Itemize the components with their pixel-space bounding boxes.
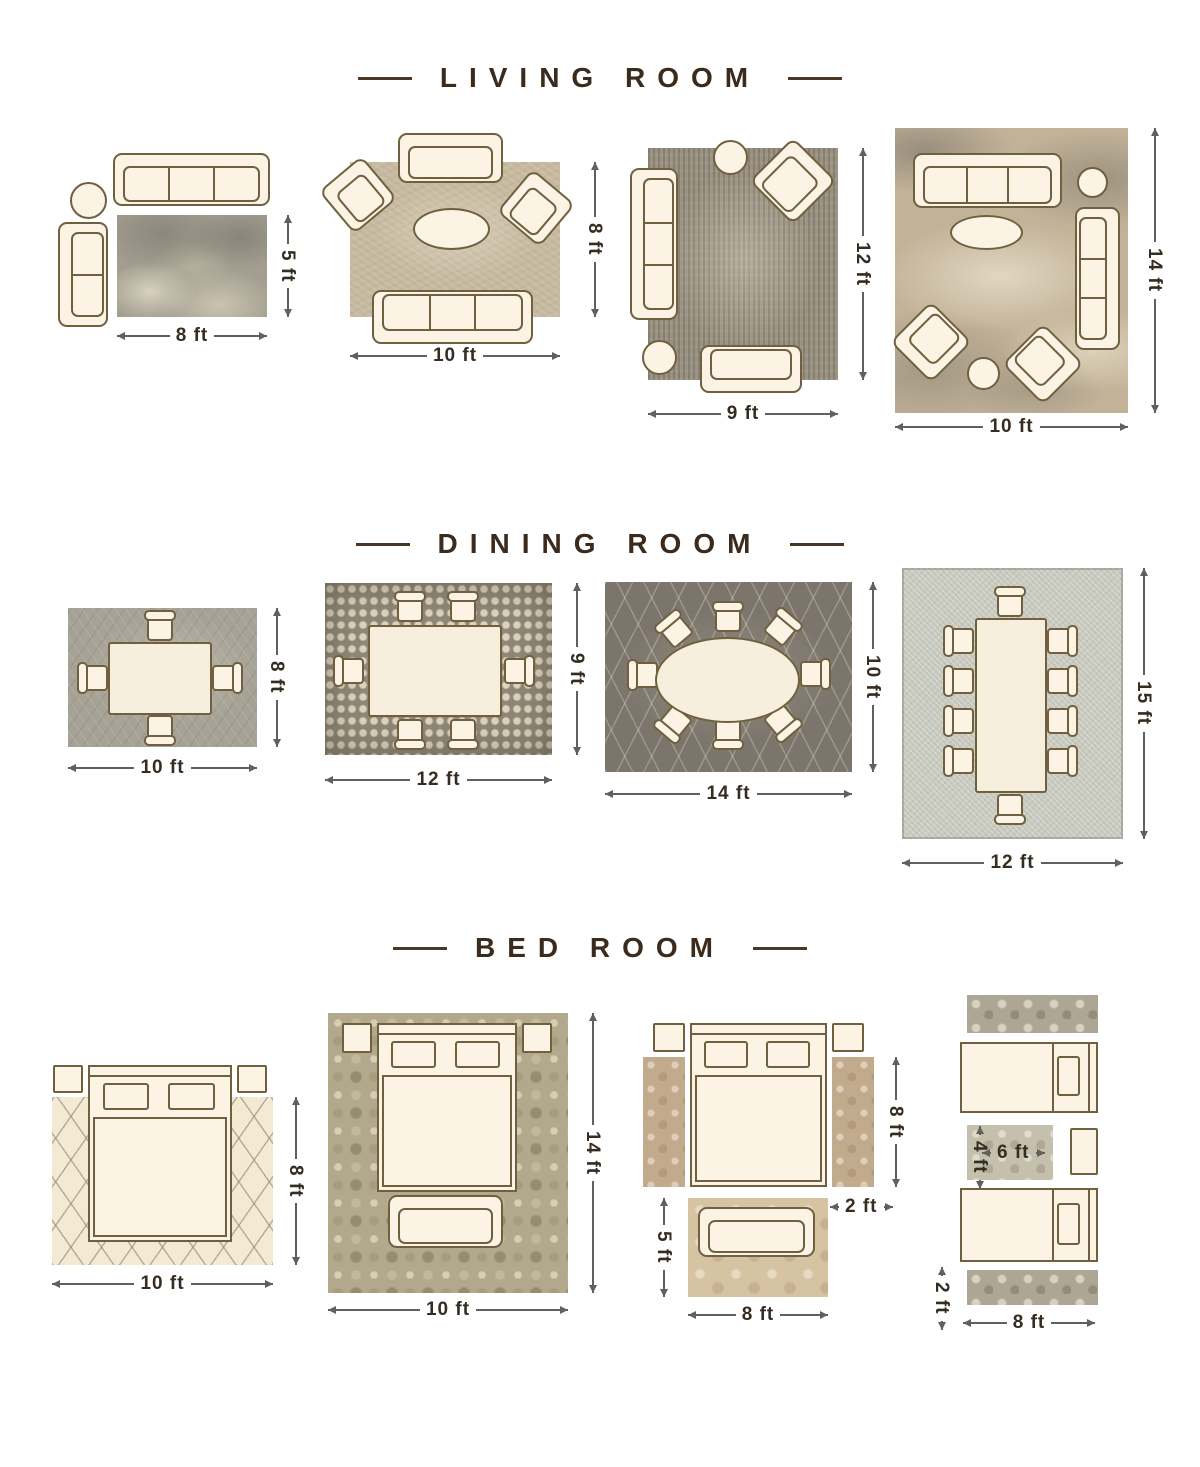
dining-chair (1047, 628, 1073, 654)
dining-chair (147, 615, 173, 641)
pillow (168, 1083, 214, 1110)
dining-chair (997, 794, 1023, 820)
dim-line (476, 1309, 568, 1311)
bedroom-layout-10x8: 8 ft 10 ft (42, 1060, 337, 1305)
dim-line (895, 1144, 897, 1187)
dim-label: 10 ft (863, 649, 882, 705)
twin-bed (960, 1188, 1098, 1262)
loveseat (698, 1207, 815, 1257)
round-side-table (70, 182, 107, 219)
sofa-three-seat (372, 290, 533, 344)
dim-line (576, 583, 578, 647)
loveseat (398, 133, 503, 183)
dim-label: 8 ft (170, 326, 215, 345)
dim-line (780, 1314, 828, 1316)
nightstand (53, 1065, 83, 1093)
dim-line (872, 705, 874, 772)
headboard (377, 1023, 517, 1035)
dimension-height: 8 ft (286, 1097, 305, 1265)
runner-rug-bottom (967, 1270, 1098, 1305)
dining-chair (800, 661, 826, 687)
dimension-width: 8 ft (963, 1313, 1095, 1332)
dimension-width: 8 ft (117, 326, 267, 345)
dim-line (350, 355, 427, 357)
dim-line (276, 700, 278, 747)
dim-line (688, 1314, 736, 1316)
dim-label: 8 ft (267, 655, 286, 700)
dining-chair (1047, 748, 1073, 774)
dining-chair (450, 719, 476, 745)
bed (377, 1023, 517, 1192)
dim-line (68, 767, 134, 769)
dim-line (287, 215, 289, 244)
dim-line (1154, 128, 1156, 242)
dim-line (979, 1126, 981, 1135)
dimension-height: 8 ft (585, 162, 604, 317)
pillow (766, 1041, 810, 1068)
rug-size-guide: LIVING ROOM 5 ft 8 ft 8 ft 10 ft 12 ft 9… (0, 0, 1200, 1467)
headboard (690, 1023, 827, 1035)
dining-layout-10x8: 8 ft 10 ft (62, 600, 352, 790)
bed-room-title: BED ROOM (475, 932, 725, 964)
dim-line (576, 691, 578, 755)
dim-label: 12 ft (984, 853, 1040, 872)
bedroom-layout-twin-runners: 4 ft 6 ft 2 ft 8 ft (930, 990, 1200, 1340)
dining-chair (450, 596, 476, 622)
nightstand (237, 1065, 267, 1093)
dim-label: 12 ft (410, 770, 466, 789)
dining-chair (212, 665, 238, 691)
dimension-width: 10 ft (328, 1300, 568, 1319)
dining-chair (948, 668, 974, 694)
dimension-width: 9 ft (648, 404, 838, 423)
dim-line (1143, 732, 1145, 839)
dim-line (941, 1321, 943, 1330)
dim-line (594, 262, 596, 317)
round-side-table (713, 140, 748, 175)
dim-label: 8 ft (736, 1305, 781, 1324)
title-dash-left (393, 947, 447, 950)
dim-line (276, 608, 278, 655)
oval-coffee-table (950, 215, 1023, 250)
living-layout-10x8: 8 ft 10 ft (330, 128, 625, 378)
dimension-height: 5 ft (278, 215, 297, 317)
dim-line (483, 355, 560, 357)
pillow (391, 1041, 436, 1068)
seat-cushions (643, 178, 674, 310)
round-ottoman (642, 340, 677, 375)
dimension-width: 14 ft (605, 784, 852, 803)
dining-chair (948, 708, 974, 734)
dim-line (214, 335, 267, 337)
dimension-width: 8 ft (688, 1305, 828, 1324)
dim-line (605, 793, 700, 795)
seat-cushions (123, 166, 260, 202)
dim-line (982, 1152, 991, 1154)
oval-coffee-table (413, 208, 490, 250)
twin-bed (960, 1042, 1098, 1113)
dim-label: 8 ft (886, 1100, 905, 1145)
nightstand (832, 1023, 864, 1052)
dining-layout-12x9: 9 ft 12 ft (322, 580, 617, 805)
dim-label: 10 ft (427, 346, 483, 365)
dim-label: 14 ft (700, 784, 756, 803)
dim-line (467, 779, 552, 781)
bed-seam (1052, 1188, 1054, 1262)
dimension-height: 8 ft (267, 608, 286, 747)
dining-chair (632, 662, 658, 688)
dim-line (902, 862, 984, 864)
dim-line (1041, 862, 1123, 864)
section-title-dining-room: DINING ROOM (0, 528, 1200, 560)
dim-line (191, 1283, 273, 1285)
dim-line (592, 1013, 594, 1125)
dim-line (1036, 1152, 1045, 1154)
dimension-width: 10 ft (895, 417, 1128, 436)
dining-layout-12x15: 15 ft 12 ft (898, 565, 1183, 875)
dim-line (663, 1198, 665, 1225)
seat-cushions (710, 349, 792, 380)
dim-line (765, 413, 838, 415)
dim-line (963, 1322, 1007, 1324)
dimension-height: 15 ft (1134, 568, 1153, 839)
dining-chair (397, 596, 423, 622)
dimension-height: 5 ft (654, 1198, 673, 1297)
headboard (88, 1065, 232, 1077)
dim-label: 10 ft (134, 1274, 190, 1293)
loveseat (700, 345, 802, 393)
title-dash-left (358, 77, 412, 80)
dim-label: 10 ft (134, 758, 190, 777)
runner-rug-top (967, 995, 1098, 1033)
sofa-three-seat (1075, 207, 1120, 350)
dim-label: 6 ft (991, 1143, 1036, 1162)
living-layout-9x12: 12 ft 9 ft (628, 138, 918, 433)
dim-line (1143, 568, 1145, 675)
dim-label: 15 ft (1134, 675, 1153, 731)
title-dash-right (788, 77, 842, 80)
living-rug-8x5 (117, 215, 267, 317)
dimension-runner-width: 2 ft (830, 1197, 910, 1216)
nightstand (342, 1023, 372, 1053)
dim-line (862, 148, 864, 236)
dim-line (979, 1180, 981, 1189)
dining-chair (948, 748, 974, 774)
nightstand (522, 1023, 552, 1053)
section-title-bed-room: BED ROOM (0, 932, 1200, 964)
dining-chair (715, 606, 741, 632)
dim-line (872, 582, 874, 649)
seat-cushions (398, 1208, 493, 1244)
dimension-runner-height: 8 ft (886, 1057, 905, 1187)
dim-label: 9 ft (721, 404, 766, 423)
dining-chair (147, 715, 173, 741)
dining-table (368, 625, 502, 717)
bedspread (695, 1075, 822, 1182)
dimension-width: 10 ft (68, 758, 257, 777)
headboard (1088, 1188, 1098, 1262)
dim-line (594, 162, 596, 217)
dim-label: 5 ft (278, 244, 297, 289)
dining-chair (397, 719, 423, 745)
dim-label: 8 ft (585, 217, 604, 262)
dim-line (663, 1270, 665, 1297)
dim-label: 2 ft (839, 1197, 884, 1216)
dim-line (328, 1309, 420, 1311)
bed (88, 1065, 232, 1242)
pillow (1057, 1056, 1080, 1096)
nightstand (653, 1023, 685, 1052)
dim-line (325, 779, 410, 781)
dim-line (1051, 1322, 1095, 1324)
dim-label: 12 ft (853, 236, 872, 292)
dim-label: 14 ft (583, 1125, 602, 1181)
dim-line (862, 292, 864, 380)
dim-line (895, 426, 983, 428)
bedspread (382, 1075, 512, 1187)
dim-label: 10 ft (983, 417, 1039, 436)
round-side-table (1077, 167, 1108, 198)
dining-chair (1047, 668, 1073, 694)
title-dash-left (356, 543, 410, 546)
seat-cushions (923, 166, 1052, 204)
dimension-runner-width: 2 ft (932, 1267, 951, 1308)
round-ottoman (967, 357, 1000, 390)
sofa-three-seat (630, 168, 678, 320)
dim-label: 8 ft (1007, 1313, 1052, 1332)
runner-rug-right (832, 1057, 874, 1187)
dim-line (895, 1057, 897, 1100)
dim-line (52, 1283, 134, 1285)
dim-label: 2 ft (932, 1276, 951, 1321)
section-title-living-room: LIVING ROOM (0, 62, 1200, 94)
dining-layout-14x10: 10 ft 14 ft (603, 578, 898, 813)
dimension-height: 9 ft (567, 583, 586, 755)
dining-chair (504, 658, 530, 684)
dining-chair (82, 665, 108, 691)
dim-label: 9 ft (567, 647, 586, 692)
dining-room-title: DINING ROOM (438, 528, 763, 560)
dim-line (592, 1181, 594, 1293)
dim-line (1154, 299, 1156, 413)
dim-line (941, 1267, 943, 1276)
dim-line (295, 1203, 297, 1265)
dimension-height: 14 ft (1145, 128, 1164, 413)
dimension-height: 14 ft (583, 1013, 602, 1293)
seat-cushions (382, 294, 523, 331)
sofa-two-seat (58, 222, 108, 327)
living-room-title: LIVING ROOM (440, 62, 760, 94)
seat-cushions (71, 232, 104, 317)
dining-chair (948, 628, 974, 654)
dimension-width: 10 ft (350, 346, 560, 365)
dimension-height: 10 ft (863, 582, 882, 772)
dimension-width: 12 ft (325, 770, 552, 789)
bedroom-layout-runners-foot-rug: 8 ft 2 ft 5 ft 8 ft (640, 1015, 935, 1335)
pillow (455, 1041, 500, 1068)
oval-dining-table (655, 637, 800, 723)
bed (690, 1023, 827, 1187)
dim-line (757, 793, 852, 795)
dim-line (117, 335, 170, 337)
bed-seam (1052, 1042, 1054, 1113)
dim-label: 14 ft (1145, 242, 1164, 298)
dining-chair (1047, 708, 1073, 734)
dining-table (108, 642, 212, 715)
dim-line (648, 413, 721, 415)
dim-line (191, 767, 257, 769)
dining-chair (338, 658, 364, 684)
headboard (1088, 1042, 1098, 1113)
bench (388, 1195, 503, 1248)
dim-line (287, 288, 289, 317)
bedspread (93, 1117, 227, 1237)
dim-line (830, 1206, 839, 1208)
pillow (103, 1083, 149, 1110)
seat-cushions (708, 1220, 805, 1253)
dimension-width: 12 ft (902, 853, 1123, 872)
dim-line (1040, 426, 1128, 428)
pillow (704, 1041, 748, 1068)
dim-label: 10 ft (420, 1300, 476, 1319)
pillow (1057, 1203, 1080, 1245)
dining-chair (997, 591, 1023, 617)
dim-label: 5 ft (654, 1225, 673, 1270)
sofa-three-seat (113, 153, 270, 206)
dining-table (975, 618, 1047, 793)
bedroom-layout-10x14: 14 ft 10 ft (325, 1010, 625, 1330)
living-layout-8x5: 5 ft 8 ft (50, 145, 340, 360)
seat-cushions (1079, 217, 1107, 340)
dimension-height: 12 ft (853, 148, 872, 380)
seat-cushions (408, 146, 493, 179)
nightstand (1070, 1128, 1098, 1175)
dim-line (884, 1206, 893, 1208)
dim-label: 8 ft (286, 1159, 305, 1204)
title-dash-right (753, 947, 807, 950)
runner-rug-left (643, 1057, 685, 1187)
sofa-three-seat (913, 153, 1062, 208)
dimension-between-rug-width: 6 ft (982, 1143, 1048, 1162)
dimension-width: 10 ft (52, 1274, 273, 1293)
dim-line (295, 1097, 297, 1159)
title-dash-right (790, 543, 844, 546)
living-layout-10x14: 14 ft 10 ft (893, 123, 1193, 448)
